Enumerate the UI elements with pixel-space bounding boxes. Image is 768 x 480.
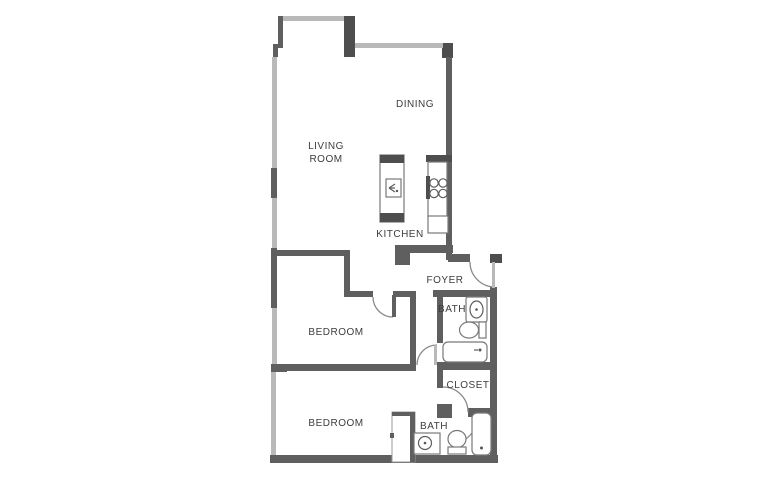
bathtub-icon (443, 342, 487, 362)
wall (273, 44, 278, 57)
wall-bottom (270, 455, 498, 463)
closet-label: CLOSET (446, 380, 489, 391)
toilet-icon (460, 322, 479, 338)
wall-bedroom-door-left (350, 291, 373, 297)
wall-pier-left (271, 168, 277, 198)
floor-plan-page: LIVING ROOM DINING KITCHEN FOYER BATH CL… (0, 0, 768, 480)
bedroom-lower-label: BEDROOM (308, 418, 363, 429)
wall-bath-lower-stub (437, 404, 452, 418)
wall-closet-top (437, 362, 490, 370)
window-segment (271, 372, 276, 455)
floor-plan-svg: LIVING ROOM DINING KITCHEN FOYER BATH CL… (0, 0, 768, 480)
faucet-dot (396, 190, 398, 192)
wall-bath-upper-left (437, 290, 443, 343)
kitchen-island-cap-top (380, 155, 404, 163)
wall-bedroom-divider (271, 364, 416, 371)
wall-entry-hinge (490, 254, 502, 263)
stove-edge (426, 176, 430, 199)
living-room-label-line2: ROOM (309, 154, 342, 165)
window-segment (272, 57, 277, 168)
bath-upper-door-leaf (434, 345, 437, 365)
wall-hallway-left (410, 291, 416, 370)
wall-closet-left (437, 362, 443, 388)
wall (278, 16, 283, 47)
foyer-label: FOYER (427, 275, 464, 286)
counter-cap (426, 155, 452, 162)
sink-drain-dot (424, 442, 427, 445)
window-segment (272, 308, 277, 364)
toilet-base (448, 447, 466, 454)
kitchen-island-cap-bottom (380, 213, 404, 222)
window-segment (272, 198, 277, 248)
wall-step (344, 250, 350, 297)
window-segment (355, 43, 443, 48)
living-room-label-line1: LIVING (308, 141, 344, 152)
bedroom-upper-door-leaf (392, 295, 396, 317)
window-segment (283, 16, 344, 21)
bath-lower-fixtures (414, 413, 491, 455)
refrigerator-icon (428, 216, 448, 233)
bedroom-upper-door-arc (373, 297, 393, 317)
dining-label: DINING (396, 99, 434, 110)
wall-entry-left (448, 254, 470, 262)
entry-door-leaf (492, 262, 495, 288)
kitchen-fixtures (380, 155, 452, 233)
bath-lower-label: BATH (420, 421, 448, 432)
toilet-tank (479, 322, 486, 338)
entry-door-arc (470, 262, 495, 287)
wall-living-bedroom (277, 250, 348, 256)
wall-left-bedroom (271, 248, 277, 308)
tub-faucet-dot (480, 447, 483, 450)
sink-drain-dot (475, 308, 478, 311)
tub-faucet-dot (479, 349, 482, 352)
wall-kitchen-block (395, 245, 410, 265)
pocket-door-pull (390, 433, 394, 438)
bedroom-upper-label: BEDROOM (308, 327, 363, 338)
toilet-icon (448, 431, 466, 448)
bath-upper-label: BATH (438, 304, 466, 315)
room-labels: LIVING ROOM DINING KITCHEN FOYER BATH CL… (308, 99, 489, 432)
wall-pier (344, 16, 355, 57)
kitchen-label: KITCHEN (376, 229, 423, 240)
sink-icon (414, 433, 440, 454)
wall-pier (442, 43, 453, 58)
